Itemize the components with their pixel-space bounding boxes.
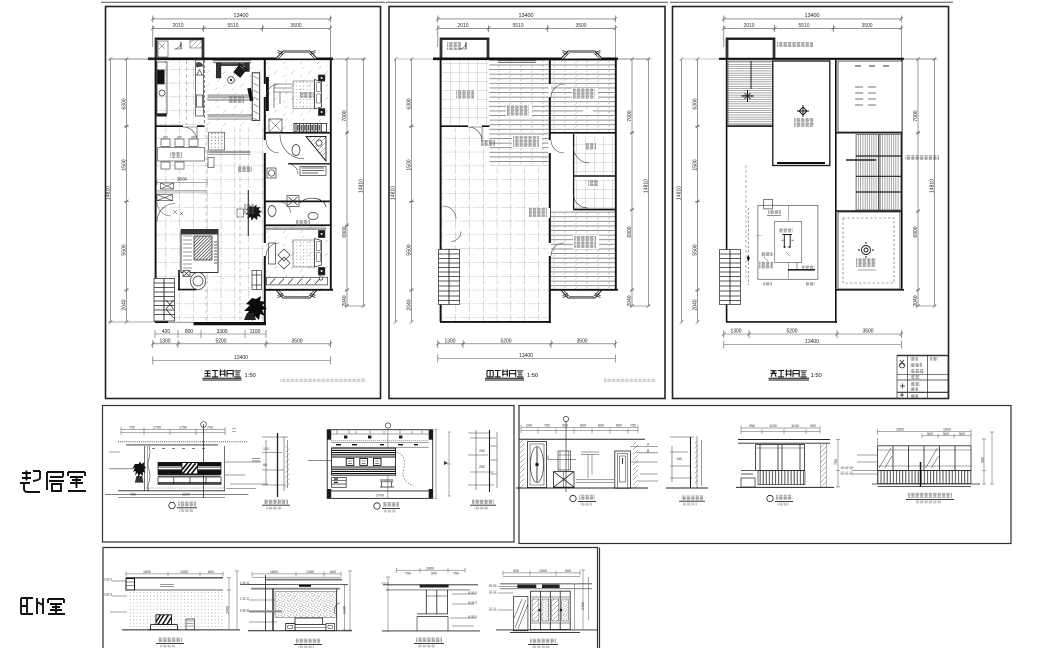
svg-text:3200: 3200 <box>182 493 190 497</box>
svg-text:6300: 6300 <box>693 98 699 109</box>
svg-text:14810: 14810 <box>359 179 365 193</box>
svg-text:6900: 6900 <box>342 226 348 237</box>
svg-text:500: 500 <box>959 432 965 436</box>
svg-text:700: 700 <box>129 426 135 430</box>
svg-text:B: B <box>647 449 650 453</box>
svg-text:250: 250 <box>479 465 485 469</box>
svg-text:1350: 1350 <box>306 570 314 574</box>
svg-text:1500: 1500 <box>539 569 547 573</box>
svg-text:250: 250 <box>479 449 485 453</box>
svg-text:6300: 6300 <box>407 98 413 109</box>
svg-text:950: 950 <box>749 424 755 428</box>
svg-text:5500: 5500 <box>693 244 699 255</box>
svg-text:750: 750 <box>130 493 136 497</box>
svg-text:600: 600 <box>580 423 586 427</box>
svg-text:5200: 5200 <box>500 339 511 345</box>
svg-text:750: 750 <box>405 572 411 576</box>
svg-text:3500: 3500 <box>291 339 302 345</box>
svg-text:2400: 2400 <box>343 606 347 614</box>
svg-text:600: 600 <box>616 423 622 427</box>
svg-text:900: 900 <box>562 423 568 427</box>
svg-text:3500: 3500 <box>862 329 873 335</box>
svg-text:1500: 1500 <box>407 159 413 170</box>
svg-text:1500: 1500 <box>122 159 128 170</box>
svg-text:2040: 2040 <box>913 295 919 306</box>
svg-text:600: 600 <box>330 570 336 574</box>
svg-text:2040: 2040 <box>122 299 128 310</box>
svg-text:950: 950 <box>810 424 816 428</box>
svg-text:2010: 2010 <box>743 23 754 29</box>
svg-text:800: 800 <box>185 329 194 335</box>
svg-text:750: 750 <box>544 423 550 427</box>
svg-text:A: A <box>647 443 650 447</box>
svg-text:1300: 1300 <box>159 339 170 345</box>
svg-text:2010: 2010 <box>457 23 468 29</box>
svg-text:13400: 13400 <box>234 13 249 19</box>
svg-text:5510: 5510 <box>512 23 523 29</box>
svg-text:1:50: 1:50 <box>245 373 256 379</box>
svg-text:420: 420 <box>162 329 171 335</box>
svg-text:13400: 13400 <box>805 13 820 19</box>
svg-text:5200: 5200 <box>786 329 797 335</box>
svg-text:1100: 1100 <box>250 329 261 335</box>
svg-text:2400: 2400 <box>581 602 585 610</box>
svg-text:750: 750 <box>834 459 838 465</box>
svg-text:900: 900 <box>981 457 985 463</box>
svg-text:1100: 1100 <box>769 424 777 428</box>
svg-text:750: 750 <box>453 572 459 576</box>
svg-text:1800: 1800 <box>143 570 151 574</box>
svg-text:14810: 14810 <box>930 179 936 193</box>
svg-text:1500: 1500 <box>896 428 904 432</box>
svg-text:1:50: 1:50 <box>527 373 538 379</box>
svg-text:14810: 14810 <box>391 186 397 200</box>
svg-text:6900: 6900 <box>627 226 633 237</box>
svg-text:2040: 2040 <box>693 299 699 310</box>
svg-text:900: 900 <box>565 569 571 573</box>
svg-text:120: 120 <box>263 447 269 451</box>
svg-text:150: 150 <box>676 457 682 461</box>
svg-text:14810: 14810 <box>106 186 112 200</box>
svg-text:3300: 3300 <box>216 329 227 335</box>
svg-text:3500: 3500 <box>861 23 872 29</box>
svg-text:500: 500 <box>943 432 949 436</box>
svg-text:3500: 3500 <box>290 23 301 29</box>
svg-text:1300: 1300 <box>444 339 455 345</box>
svg-text:3700: 3700 <box>376 493 384 497</box>
svg-text:5510: 5510 <box>798 23 809 29</box>
svg-text:600: 600 <box>208 570 214 574</box>
svg-text:13400: 13400 <box>805 339 819 345</box>
svg-text:80: 80 <box>263 463 267 467</box>
svg-text:6300: 6300 <box>122 98 128 109</box>
svg-text:14810: 14810 <box>644 179 650 193</box>
svg-text:7000: 7000 <box>627 110 633 121</box>
svg-text:900: 900 <box>431 572 437 576</box>
svg-text:5200: 5200 <box>215 339 226 345</box>
svg-text:1750: 1750 <box>153 426 161 430</box>
svg-text:13400: 13400 <box>234 355 248 361</box>
svg-text:1350: 1350 <box>180 570 188 574</box>
svg-text:2040: 2040 <box>342 295 348 306</box>
svg-text:3500: 3500 <box>576 339 587 345</box>
svg-text:500: 500 <box>927 432 933 436</box>
svg-text:240: 240 <box>526 423 532 427</box>
svg-text:6900: 6900 <box>913 226 919 237</box>
svg-text:2400: 2400 <box>426 566 434 570</box>
svg-text:7000: 7000 <box>342 110 348 121</box>
svg-text:3500: 3500 <box>575 23 586 29</box>
svg-text:1100: 1100 <box>791 424 799 428</box>
svg-text:700: 700 <box>207 426 213 430</box>
svg-text:14810: 14810 <box>677 186 683 200</box>
svg-text:1800: 1800 <box>270 570 278 574</box>
svg-text:2040: 2040 <box>407 299 413 310</box>
svg-text:2010: 2010 <box>172 23 183 29</box>
svg-text:1500: 1500 <box>693 159 699 170</box>
svg-text:7000: 7000 <box>913 110 919 121</box>
svg-text:5510: 5510 <box>227 23 238 29</box>
svg-text:2040: 2040 <box>627 295 633 306</box>
svg-text:1300: 1300 <box>730 329 741 335</box>
svg-text:900: 900 <box>513 569 519 573</box>
svg-text:1500: 1500 <box>943 428 951 432</box>
svg-text:5500: 5500 <box>122 244 128 255</box>
svg-text:1750: 1750 <box>179 426 187 430</box>
svg-text:3600: 3600 <box>177 177 188 182</box>
svg-text:13400: 13400 <box>519 353 533 359</box>
svg-text:2400: 2400 <box>226 606 230 614</box>
svg-text:750: 750 <box>630 423 636 427</box>
svg-text:5500: 5500 <box>407 244 413 255</box>
svg-text:13400: 13400 <box>519 13 534 19</box>
svg-text:1:50: 1:50 <box>811 373 822 379</box>
svg-text:600: 600 <box>598 423 604 427</box>
